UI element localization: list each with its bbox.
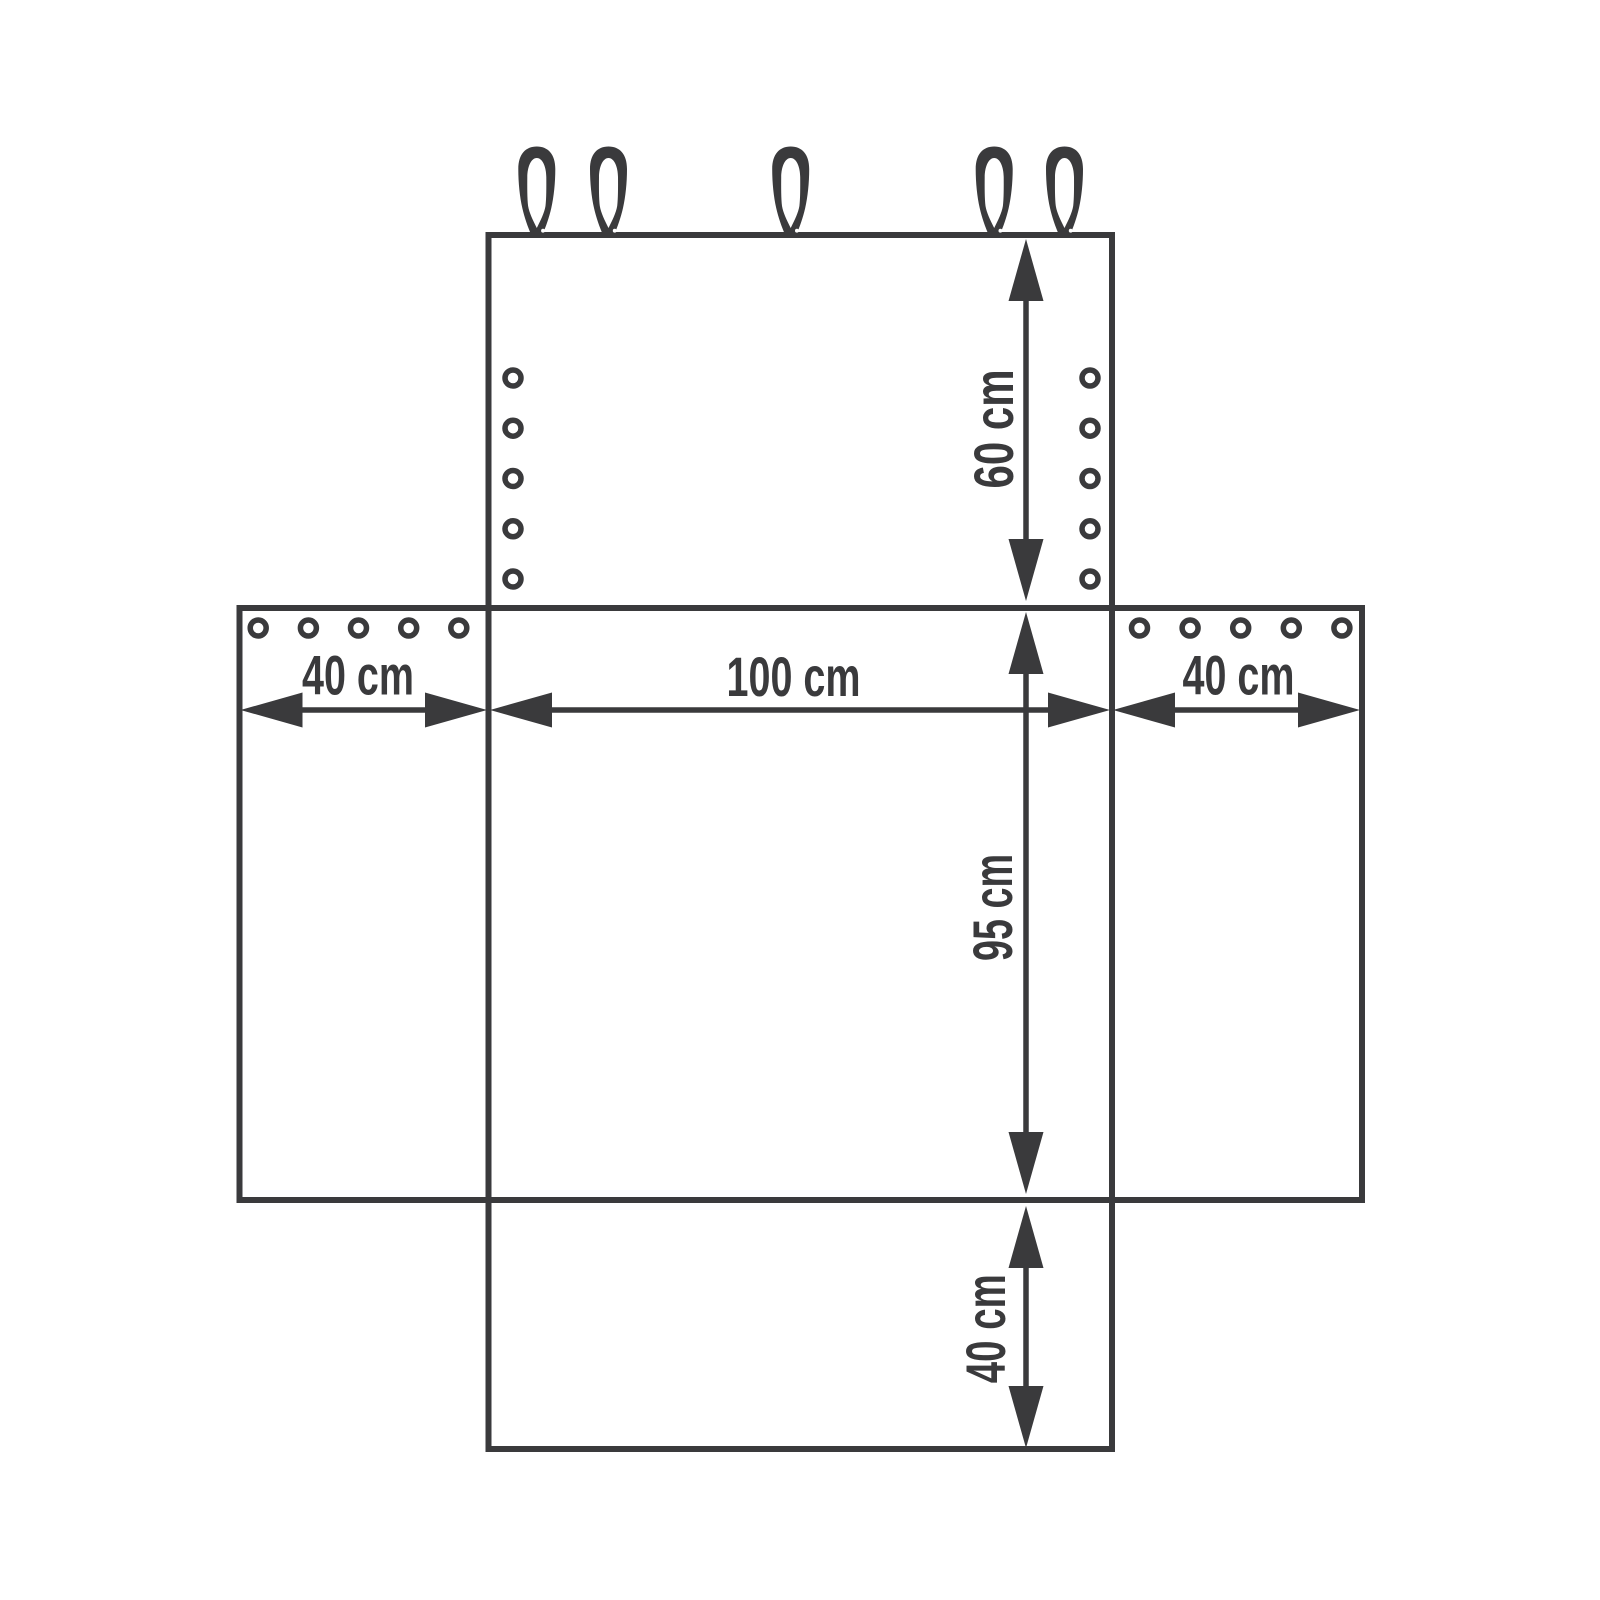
svg-text:60 cm: 60 cm: [962, 370, 1025, 489]
svg-text:95 cm: 95 cm: [961, 854, 1024, 961]
svg-text:100 cm: 100 cm: [727, 645, 861, 708]
svg-text:40 cm: 40 cm: [954, 1274, 1017, 1383]
svg-text:40 cm: 40 cm: [302, 644, 414, 707]
svg-text:40 cm: 40 cm: [1183, 644, 1295, 707]
